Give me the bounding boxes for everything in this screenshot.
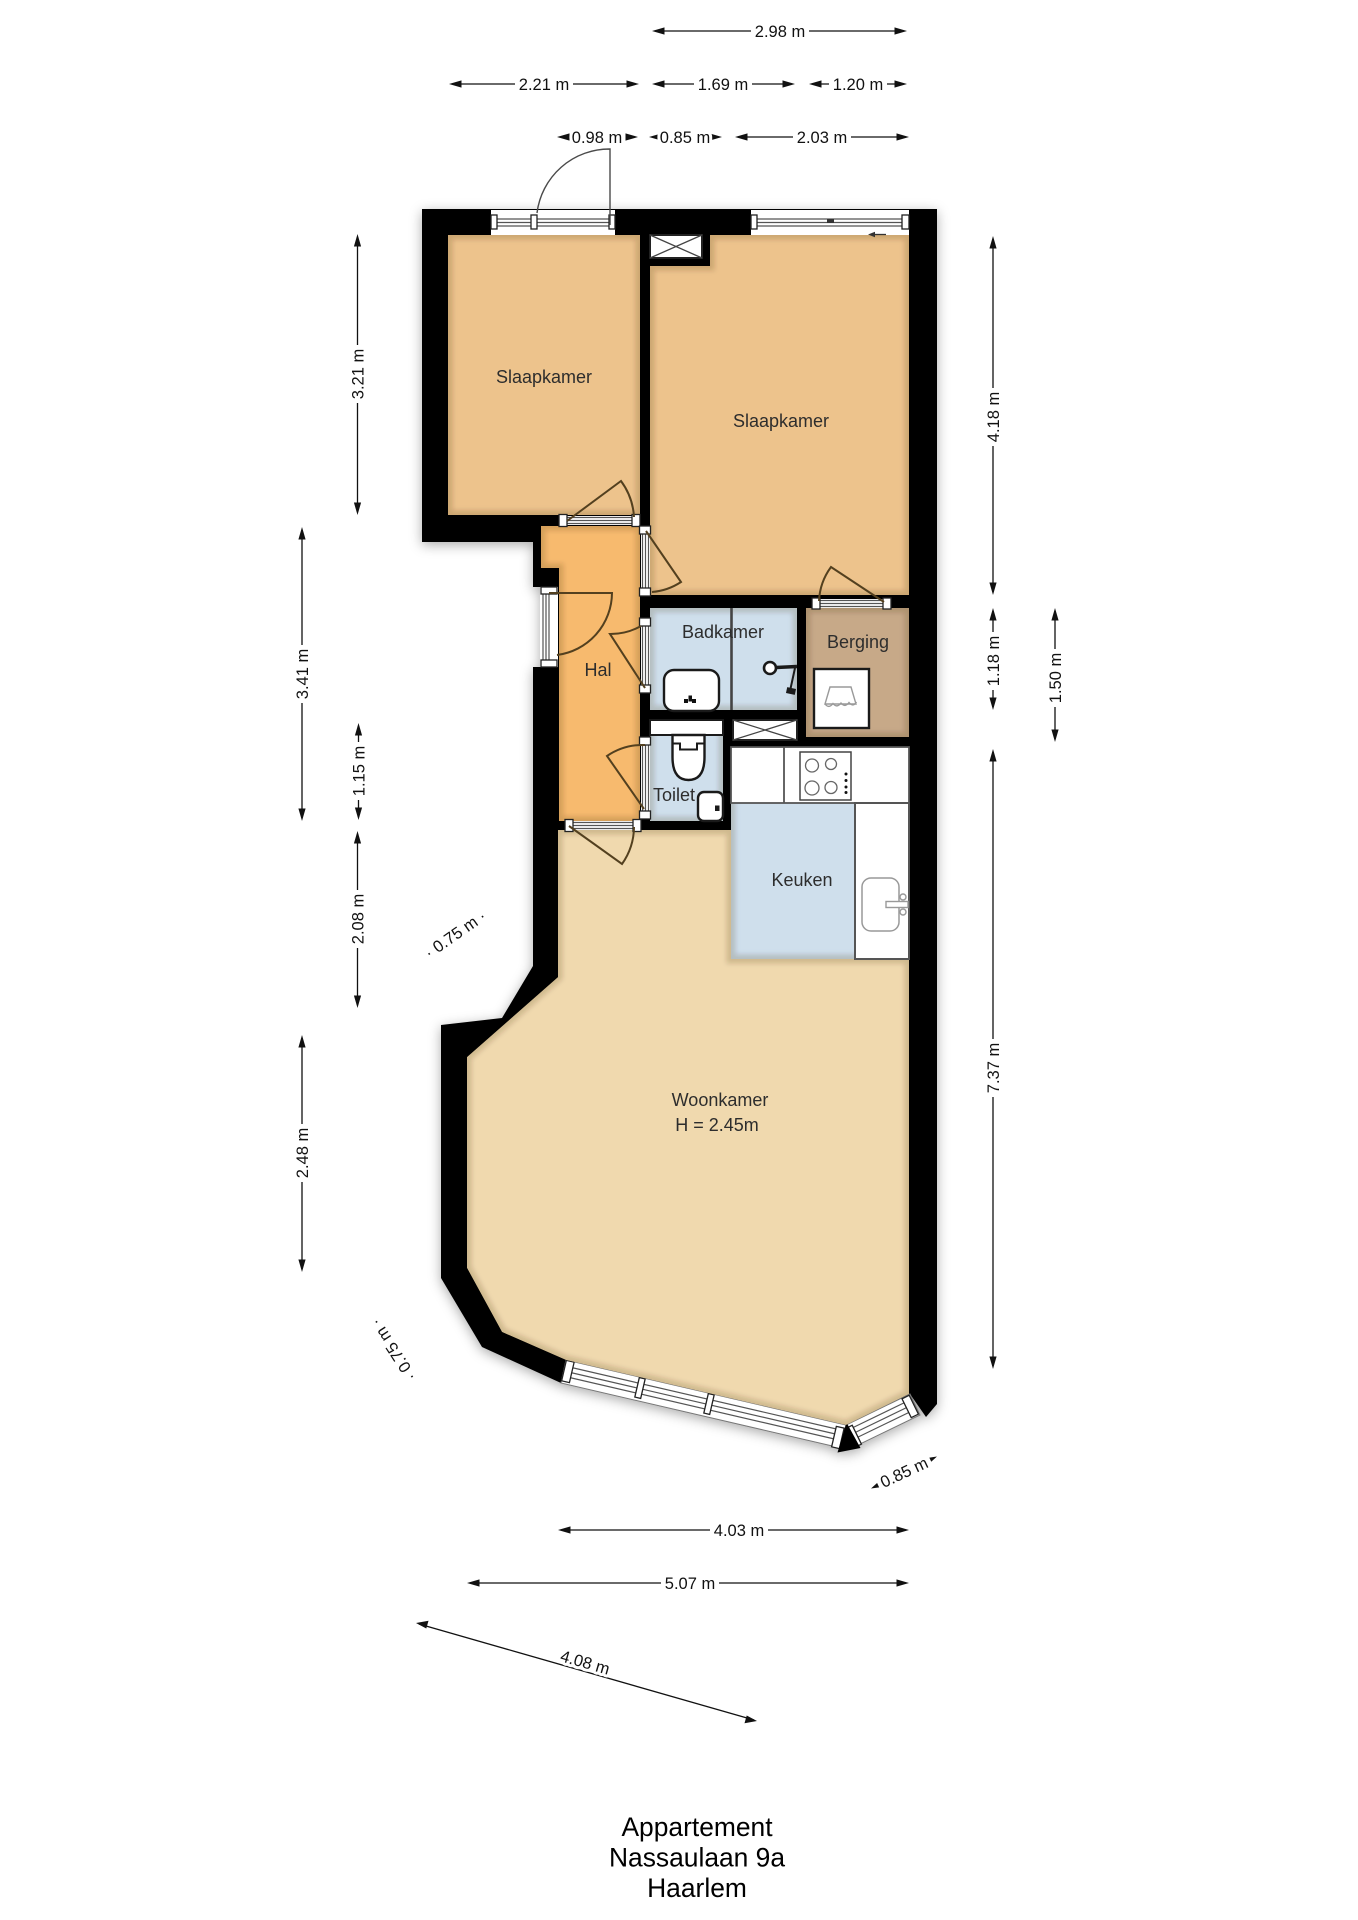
svg-text:1.50 m: 1.50 m <box>1047 653 1065 703</box>
svg-text:Nassaulaan 9a: Nassaulaan 9a <box>609 1843 785 1873</box>
svg-text:2.21 m: 2.21 m <box>519 76 569 94</box>
svg-text:2.48 m: 2.48 m <box>294 1128 312 1178</box>
svg-text:3.41 m: 3.41 m <box>294 649 312 699</box>
svg-text:Woonkamer: Woonkamer <box>672 1090 769 1110</box>
svg-text:Slaapkamer: Slaapkamer <box>733 411 829 431</box>
svg-text:1.20 m: 1.20 m <box>833 76 883 94</box>
svg-text:2.98 m: 2.98 m <box>755 23 805 41</box>
svg-text:Keuken: Keuken <box>771 870 832 890</box>
svg-text:3.21 m: 3.21 m <box>350 349 368 399</box>
svg-text:4.03 m: 4.03 m <box>714 1522 764 1540</box>
svg-text:7.37 m: 7.37 m <box>985 1043 1003 1093</box>
svg-text:H = 2.45m: H = 2.45m <box>675 1115 759 1135</box>
svg-text:4.18 m: 4.18 m <box>985 392 1003 442</box>
svg-text:2.08 m: 2.08 m <box>350 894 368 944</box>
svg-text:1.18 m: 1.18 m <box>985 636 1003 686</box>
svg-text:Toilet: Toilet <box>653 785 695 805</box>
svg-text:Haarlem: Haarlem <box>647 1873 747 1903</box>
svg-text:Berging: Berging <box>827 632 889 652</box>
svg-text:0.85 m: 0.85 m <box>660 129 710 147</box>
svg-text:Hal: Hal <box>584 660 611 680</box>
svg-text:1.69 m: 1.69 m <box>698 76 748 94</box>
svg-text:5.07 m: 5.07 m <box>665 1575 715 1593</box>
svg-text:0.98 m: 0.98 m <box>572 129 622 147</box>
svg-text:Slaapkamer: Slaapkamer <box>496 367 592 387</box>
svg-text:1.15 m: 1.15 m <box>351 746 369 796</box>
svg-text:Appartement: Appartement <box>621 1812 773 1842</box>
svg-text:2.03 m: 2.03 m <box>797 129 847 147</box>
svg-text:Badkamer: Badkamer <box>682 622 764 642</box>
